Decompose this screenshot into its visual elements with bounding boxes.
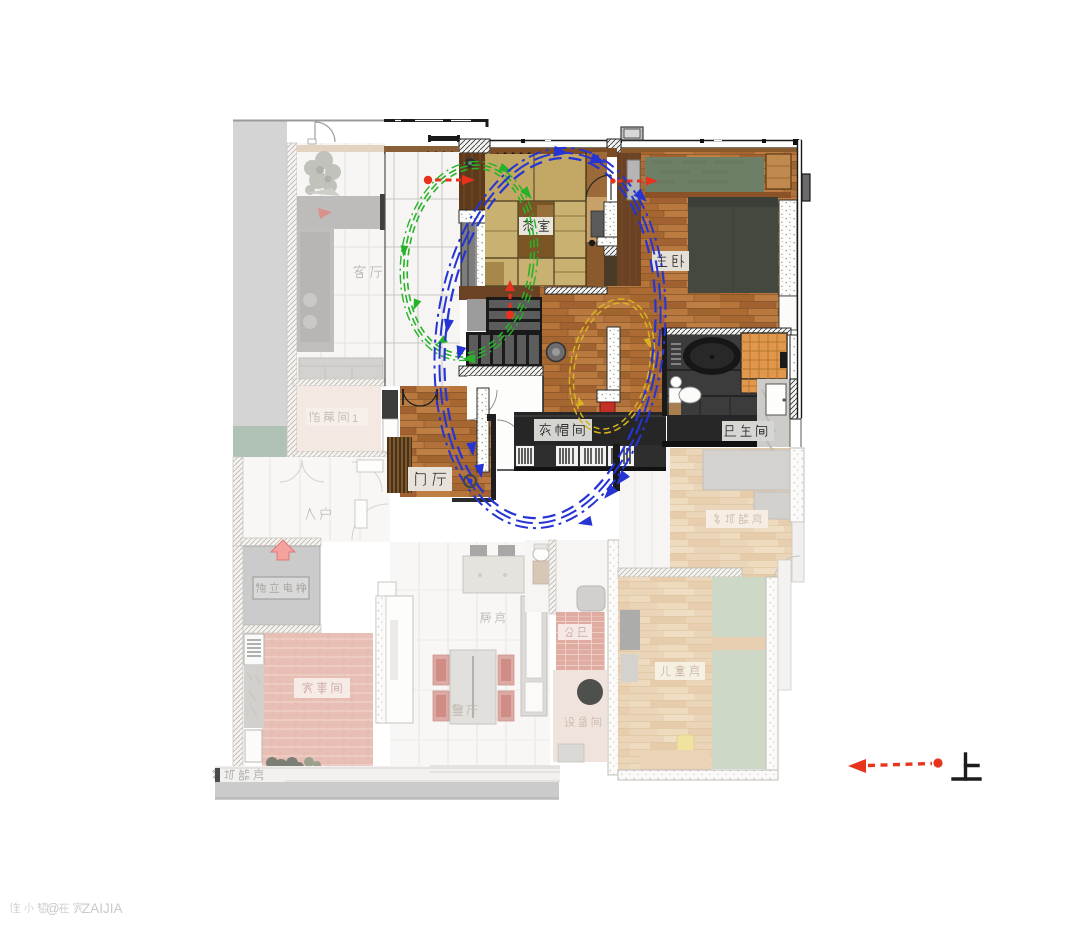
svg-text:ZAIJIA: ZAIJIA <box>82 901 123 916</box>
svg-text:1: 1 <box>352 413 358 425</box>
svg-text:@: @ <box>46 901 60 916</box>
